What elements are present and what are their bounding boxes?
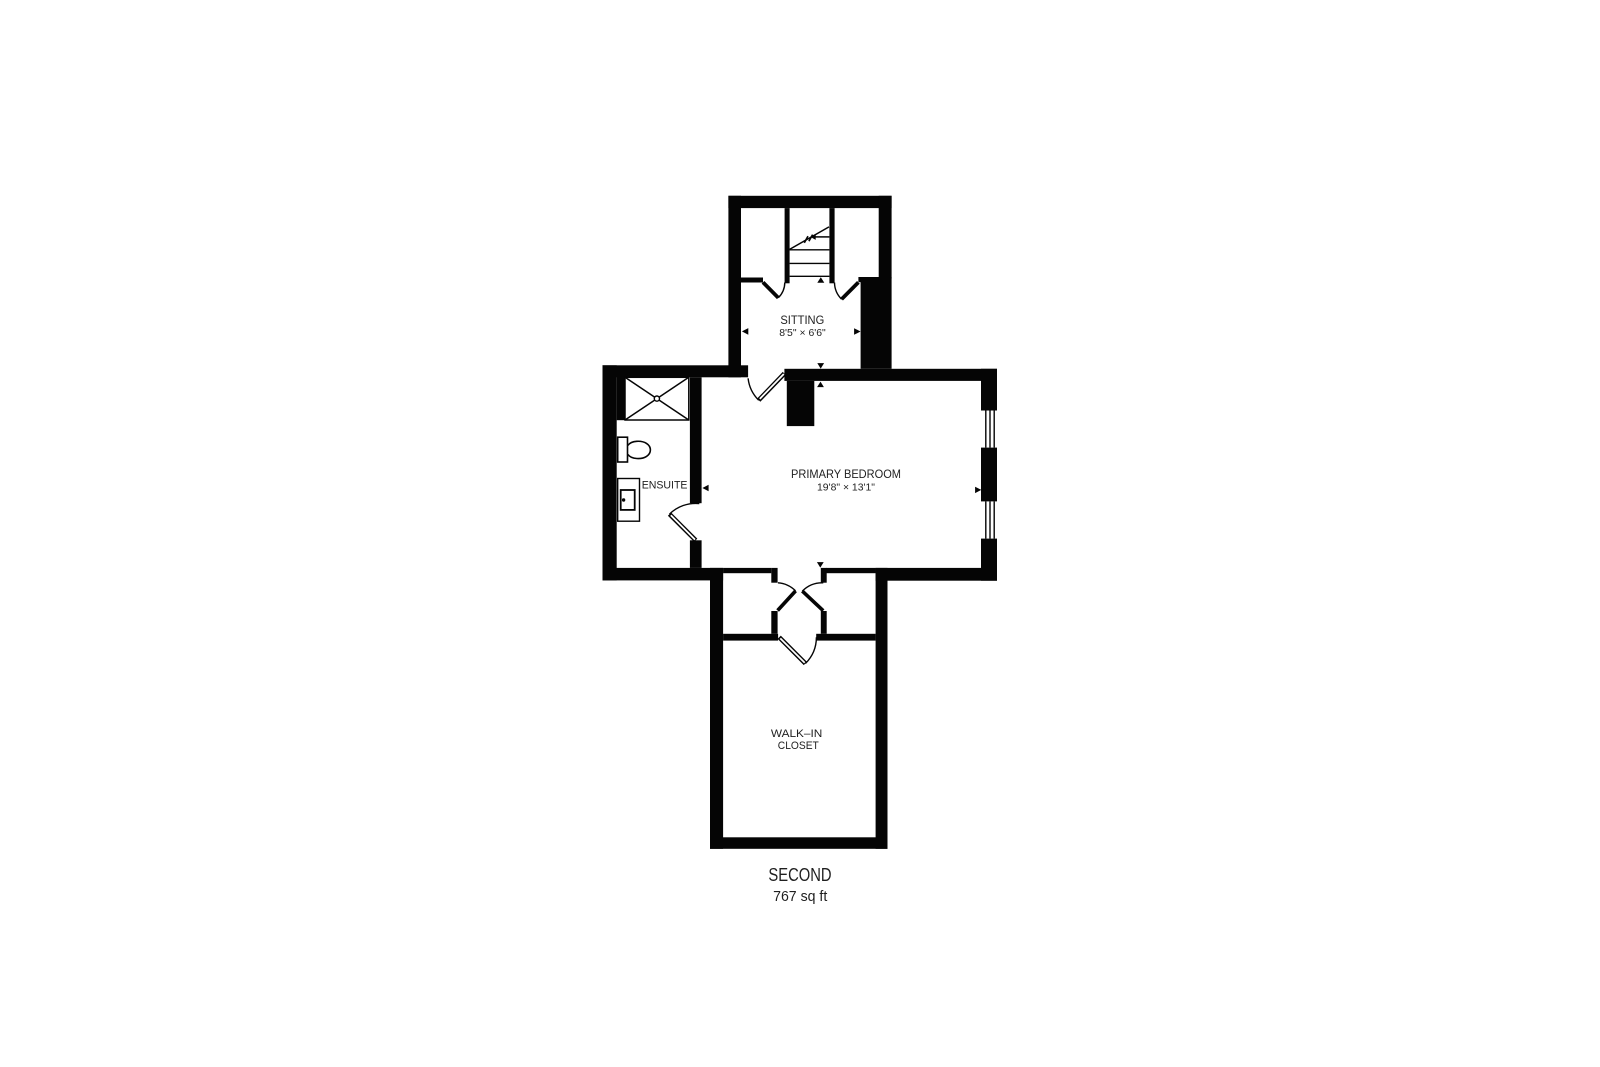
svg-text:SITTING: SITTING <box>780 313 824 327</box>
svg-text:PRIMARY BEDROOM: PRIMARY BEDROOM <box>791 468 901 481</box>
svg-text:767 sq ft: 767 sq ft <box>773 888 828 905</box>
svg-text:SECOND: SECOND <box>768 865 831 885</box>
svg-text:CLOSET: CLOSET <box>778 740 819 752</box>
svg-text:8'5" × 6'6": 8'5" × 6'6" <box>779 328 826 339</box>
svg-text:19'8" × 13'1": 19'8" × 13'1" <box>817 483 875 494</box>
svg-text:WALK–IN: WALK–IN <box>771 728 823 740</box>
svg-text:ENSUITE: ENSUITE <box>642 480 688 492</box>
